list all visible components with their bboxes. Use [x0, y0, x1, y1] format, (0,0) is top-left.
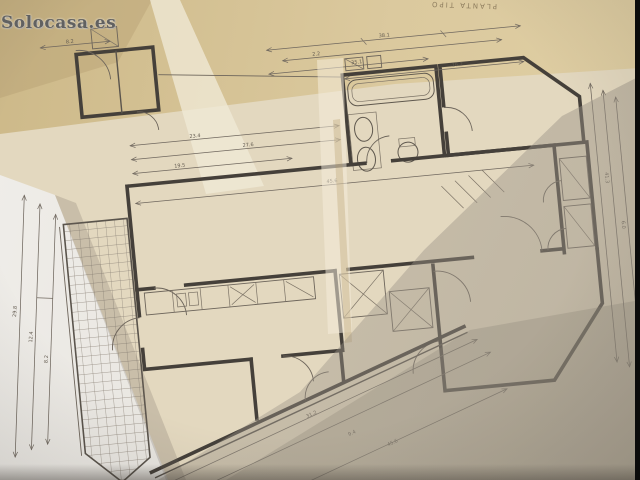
dimension-label: 31.2	[305, 410, 318, 420]
dimension-label: 41.3	[603, 172, 610, 184]
kitchen-sink-icon	[177, 293, 187, 307]
dimension-label: 45.6	[326, 178, 338, 185]
dimension-label: 19.5	[174, 163, 186, 170]
top-right-room	[440, 53, 584, 156]
dimension-label: 29.8	[12, 306, 19, 318]
terrace	[59, 218, 152, 480]
bottom-room	[251, 351, 346, 419]
dimension-label: 45.6	[386, 438, 399, 448]
sink-icon	[353, 117, 373, 143]
floor-plan-drawing: 29.8 12.4 8.2	[0, 0, 640, 480]
kitchen	[107, 271, 343, 373]
dimension-label: 23.4	[189, 133, 201, 140]
kitchen-sink-icon	[188, 292, 198, 306]
dimension-label: 6.0	[620, 221, 627, 229]
door-arc	[444, 105, 472, 133]
dimension-label: 16.2	[452, 62, 464, 69]
dimension-label: 9.4	[347, 429, 357, 438]
bedroom	[433, 249, 609, 390]
dimension-label: 12.4	[28, 331, 35, 343]
diagonal-wall	[140, 326, 478, 478]
dimension-label: 8.2	[66, 39, 74, 46]
wardrobes	[538, 142, 597, 254]
door-arc	[283, 353, 314, 384]
plan-rotated-group: 38.1 2.2 35.1 16.2 8.2 23.4 27.6 19.5 45…	[39, 0, 640, 480]
watermark: Solocasa.es	[1, 13, 116, 33]
leader-ticks	[440, 168, 505, 210]
right-dimension-group: 41.3 6.0 28.7	[590, 80, 640, 374]
salon	[127, 145, 567, 320]
dimension-label: 27.6	[242, 142, 254, 149]
door-arc	[434, 268, 471, 305]
dimension-label: 35.1	[351, 59, 363, 66]
entry-rooms	[74, 23, 161, 137]
dimension-label: 2.2	[312, 51, 320, 58]
dimension-label: 38.1	[378, 32, 390, 39]
photo-of-floor-plan: 29.8 12.4 8.2	[0, 0, 640, 480]
left-dimension-group: 29.8 12.4 8.2	[7, 195, 56, 458]
door-arc	[501, 213, 542, 254]
dimension-label: 8.2	[43, 355, 50, 363]
dimension-label: 28.7	[636, 269, 640, 281]
diagonal-dimension-group: 31.2 9.4 45.6	[154, 337, 516, 480]
